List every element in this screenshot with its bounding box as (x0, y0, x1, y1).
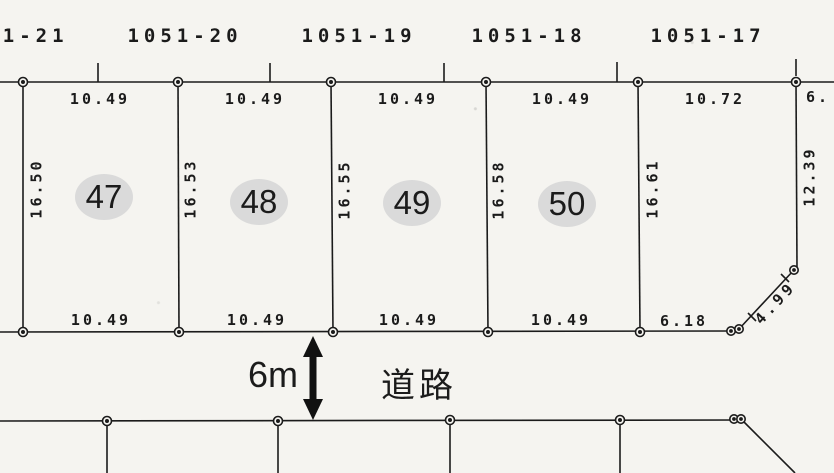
top-edge-dim: 10.72 (660, 90, 770, 108)
plot-number: 50 (549, 185, 586, 223)
upper-lot-label: 1051-21 (0, 25, 86, 47)
side-dim: 16.58 (490, 145, 507, 235)
road-width-arrow (303, 336, 323, 420)
side-dim: 16.55 (336, 145, 353, 235)
side-dim: 16.53 (182, 144, 199, 234)
plot-number: 48 (241, 183, 278, 221)
bottom-edge-dim: 10.49 (202, 311, 312, 329)
upper-lot-label: 1051-18 (454, 25, 604, 47)
plot-number-badge: 49 (383, 180, 441, 226)
top-edge-dim: 10.49 (200, 90, 310, 108)
upper-lot-label: 1051-19 (284, 25, 434, 47)
top-edge-dim: 6. (806, 88, 834, 106)
side-dim: 16.50 (28, 144, 45, 234)
upper-lot-label: 1051-20 (110, 25, 260, 47)
south-parcel-lines (107, 420, 795, 473)
side-dim: 16.61 (644, 144, 661, 234)
upper-lot-label: 1051-17 (633, 25, 783, 47)
right-side-dim: 12.39 (801, 132, 818, 222)
bottom-edge-dim: 10.49 (506, 311, 616, 329)
road-width-label: 6m (248, 354, 298, 396)
top-edge-dim: 10.49 (507, 90, 617, 108)
upper-lot-tick-marks (98, 59, 796, 82)
bottom-edge-dim: 10.49 (354, 311, 464, 329)
top-edge-dim: 10.49 (45, 90, 155, 108)
bottom-edge-dim: 10.49 (46, 311, 156, 329)
plot-number-badge: 48 (230, 179, 288, 225)
bottom-edge-dim: 6.18 (639, 312, 729, 330)
road-name-label: 道路 (381, 358, 457, 407)
plot-number: 47 (86, 178, 123, 216)
south-diagonal-line (742, 420, 795, 473)
survey-plat: 1051-21 1051-20 1051-19 1051-18 1051-17 … (0, 0, 834, 473)
plot-number-badge: 47 (75, 174, 133, 220)
plot-number-badge: 50 (538, 181, 596, 227)
plot-number: 49 (394, 184, 431, 222)
east-boundary-line (796, 82, 797, 268)
top-edge-dim: 10.49 (353, 90, 463, 108)
road-north-edge-line (0, 331, 731, 332)
